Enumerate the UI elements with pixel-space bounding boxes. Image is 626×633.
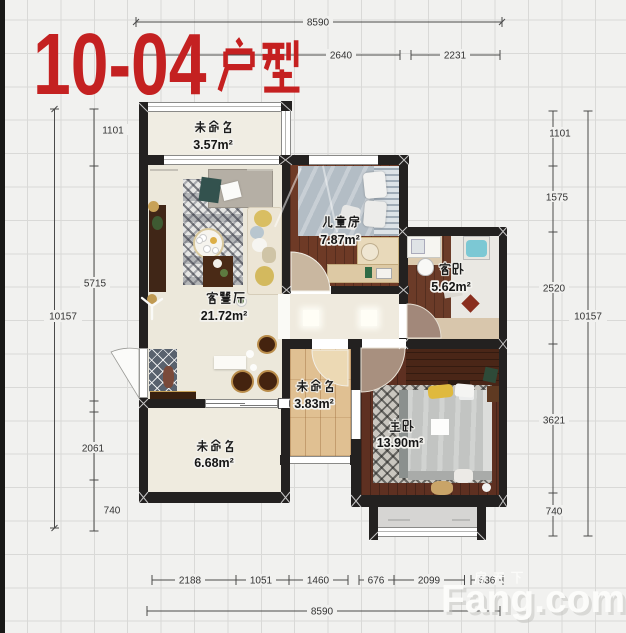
svg-text:10157: 10157 bbox=[49, 312, 77, 323]
svg-text:5.62m²: 5.62m² bbox=[431, 280, 471, 294]
svg-text:2188: 2188 bbox=[179, 576, 202, 587]
svg-text:3.83m²: 3.83m² bbox=[294, 397, 334, 411]
svg-text:1460: 1460 bbox=[307, 576, 330, 587]
svg-text:5715: 5715 bbox=[84, 279, 107, 290]
svg-text:2231: 2231 bbox=[444, 51, 467, 62]
svg-text:7.87m²: 7.87m² bbox=[320, 233, 360, 247]
svg-text:1575: 1575 bbox=[546, 193, 569, 204]
svg-text:1051: 1051 bbox=[250, 576, 273, 587]
svg-text:3621: 3621 bbox=[543, 416, 566, 427]
svg-text:10-04: 10-04 bbox=[33, 15, 207, 113]
svg-text:2520: 2520 bbox=[543, 284, 566, 295]
svg-text:10157: 10157 bbox=[574, 312, 602, 323]
svg-text:6.68m²: 6.68m² bbox=[194, 456, 234, 470]
svg-text:2640: 2640 bbox=[330, 51, 353, 62]
svg-text:676: 676 bbox=[368, 576, 385, 587]
svg-text:13.90m²: 13.90m² bbox=[377, 436, 424, 450]
svg-text:1101: 1101 bbox=[549, 129, 571, 140]
svg-text:2099: 2099 bbox=[418, 576, 441, 587]
svg-text:8590: 8590 bbox=[311, 607, 334, 618]
svg-text:1101: 1101 bbox=[102, 126, 124, 137]
svg-text:740: 740 bbox=[104, 506, 121, 517]
svg-text:3.57m²: 3.57m² bbox=[193, 138, 233, 152]
svg-text:21.72m²: 21.72m² bbox=[201, 309, 248, 323]
svg-text:8590: 8590 bbox=[307, 18, 330, 29]
svg-text:740: 740 bbox=[546, 507, 563, 518]
svg-text:2061: 2061 bbox=[82, 444, 105, 455]
svg-text:Fang.com: Fang.com bbox=[441, 578, 625, 621]
